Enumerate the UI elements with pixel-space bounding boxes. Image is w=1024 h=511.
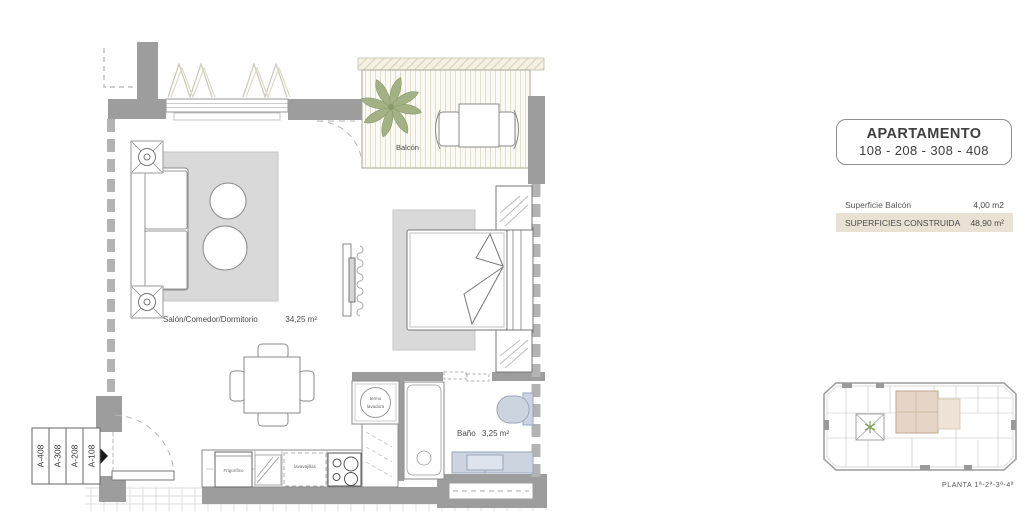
living-room-label: Salón/Comedor/Dormitorio [163,315,258,324]
balcony-chair-left [436,110,462,149]
surface-row-value: 4,00 m2 [973,200,1004,210]
dishwasher: lavavajillas [284,453,326,486]
kitchen: Frigorífico lavavajillas [202,424,398,487]
unit-tag: A-408 [36,444,46,467]
surface-row-label: Superficie Balcón [845,200,911,210]
headboard [507,228,533,332]
floorplan-page: Balcón [0,0,1024,511]
coffee-table-small [210,183,246,219]
entrance-tags: A-408 A-308 A-208 A-108 [32,428,108,484]
keyplan-caption: PLANTA 1ª-2ª-3ª-4ª [942,482,1014,489]
washer-label-2: lavadora [367,404,385,409]
survey-marker-icon [131,141,163,173]
unit-tag: A-108 [87,444,97,467]
sliding-door [467,374,489,381]
bathroom: Baño 3,25 m² [404,370,533,479]
surface-table: Superficie Balcón 4,00 m2 SUPERFICIES CO… [836,196,1013,232]
key-plan: PLANTA 1ª-2ª-3ª-4ª [824,383,1016,489]
nightstand-bottom [496,330,532,372]
sink-cabinet [255,455,281,485]
surface-row-value: 48,90 m² [970,218,1004,228]
fridge: Frigorífico [215,452,252,487]
curtain-wavy-line [357,246,363,316]
bath-label: Baño [457,429,476,438]
sliding-door [444,372,466,379]
floor-plan-drawing: Balcón [0,0,1024,511]
balcony-roof-hatch [358,58,544,70]
awning-zigzag-icon [168,64,290,97]
cooktop [328,453,361,486]
surface-row-label: SUPERFICIES CONSTRUIDA [845,218,960,228]
balcony-chair-right [497,110,519,149]
apartment-title: APARTAMENTO [867,126,982,142]
washer-column: termo lavadora [352,381,399,424]
coffee-table-large [203,226,247,270]
vanity-sink [452,452,533,473]
toilet [497,393,533,425]
apartment-units: 108 - 208 - 308 - 408 [859,143,989,158]
unit-tag: A-208 [70,444,80,467]
dining-set [230,344,314,426]
living-room-area-value: 34,25 m² [285,315,317,324]
property-line-dashed [104,48,137,87]
balcony-door [317,121,362,166]
unit-tag: A-308 [53,444,63,467]
survey-marker-icon [131,286,163,318]
balcony-table [459,104,499,147]
tv-unit [343,244,363,316]
bed [407,228,533,332]
living-window [166,99,288,120]
apartment-box: APARTAMENTO 108 - 208 - 308 - 408 [836,119,1012,165]
balcony-label: Balcón [396,143,419,152]
surface-row-constructed: SUPERFICIES CONSTRUIDA 48,90 m² [836,213,1013,232]
fridge-label: Frigorífico [223,468,244,473]
surface-row-balcony: Superficie Balcón 4,00 m2 [836,196,1013,213]
nightstand-top [496,186,532,230]
washer-label-1: termo [370,396,382,401]
sofa [131,168,188,290]
balcony: Balcón [358,58,544,168]
bath-area-value: 3,25 m² [482,429,509,438]
shower [404,382,444,479]
dishwasher-label: lavavajillas [294,464,317,469]
